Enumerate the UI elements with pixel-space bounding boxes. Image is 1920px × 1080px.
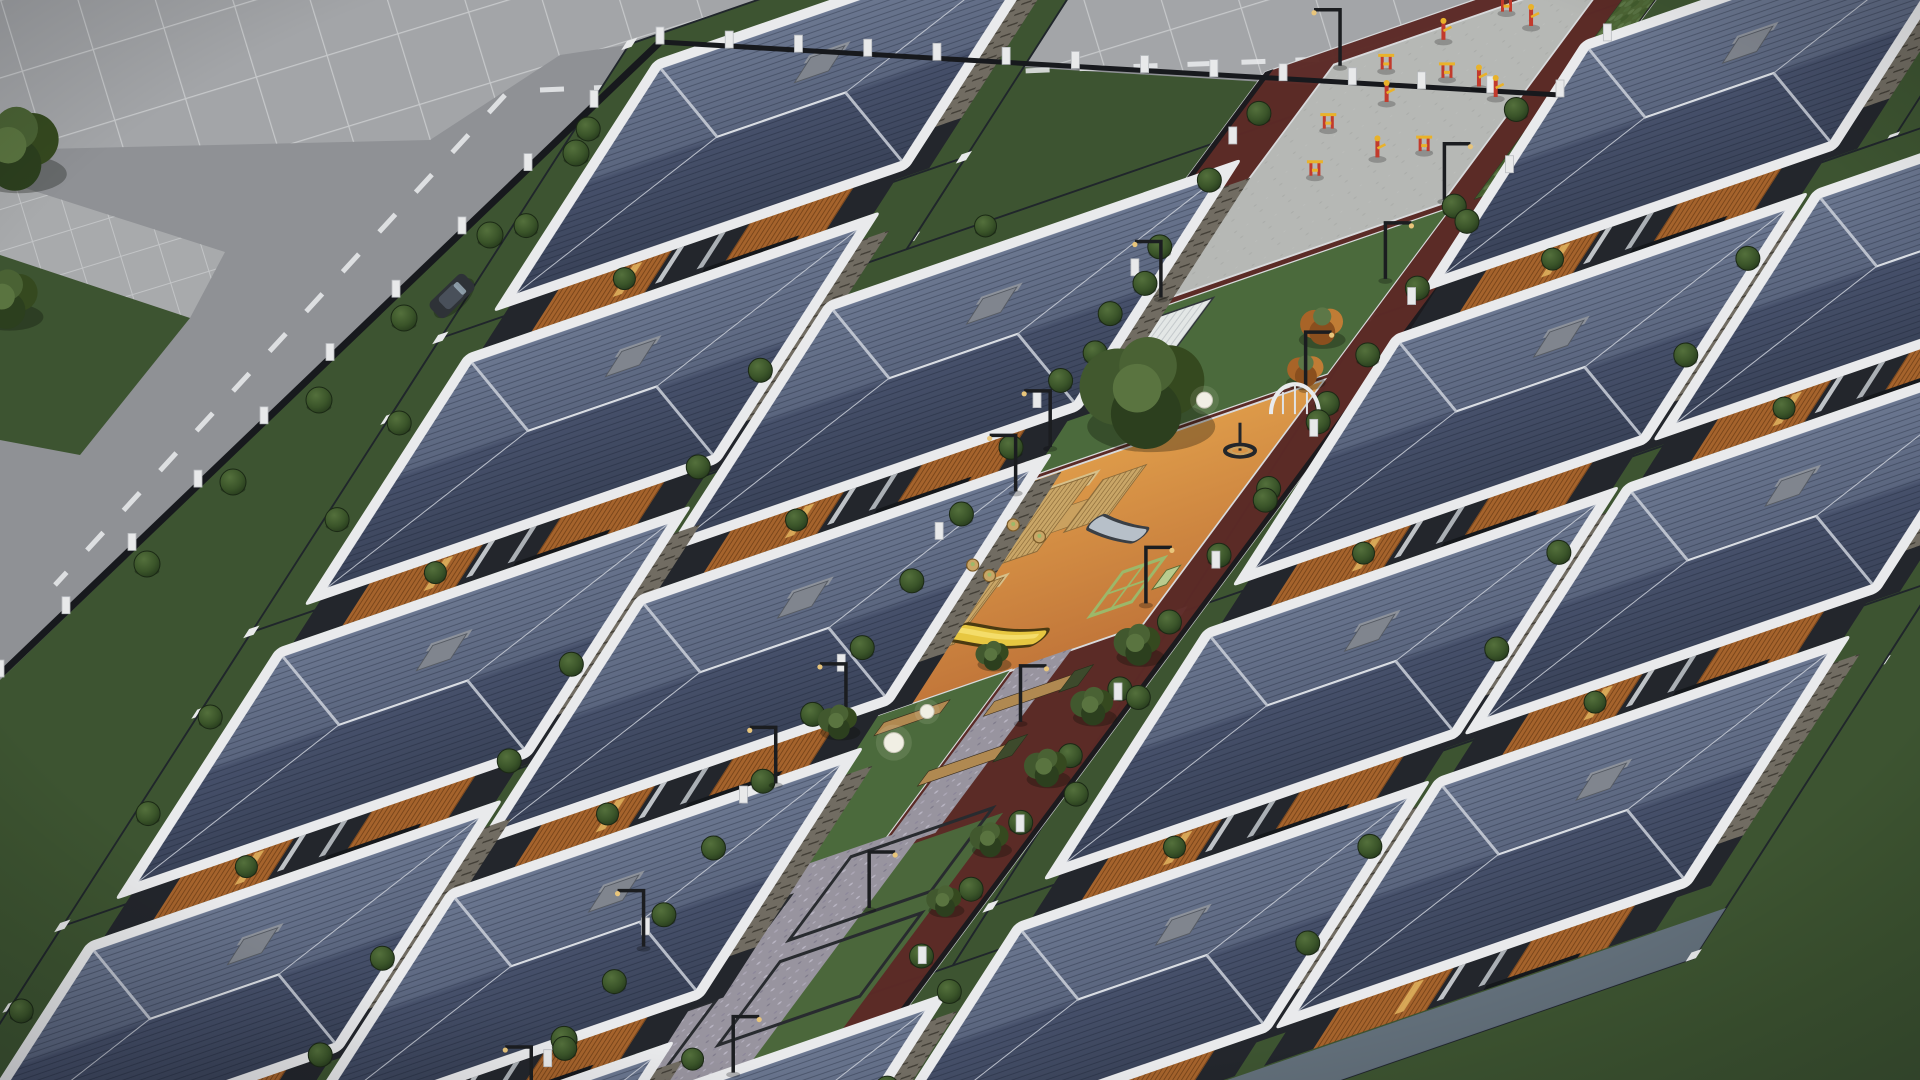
vignette-overlay xyxy=(0,0,1920,1080)
render-stage: Aerial dusk 3D rendering of a gated vill… xyxy=(0,0,1920,1080)
aerial-villa-complex-render: Aerial dusk 3D rendering of a gated vill… xyxy=(0,0,1920,1080)
